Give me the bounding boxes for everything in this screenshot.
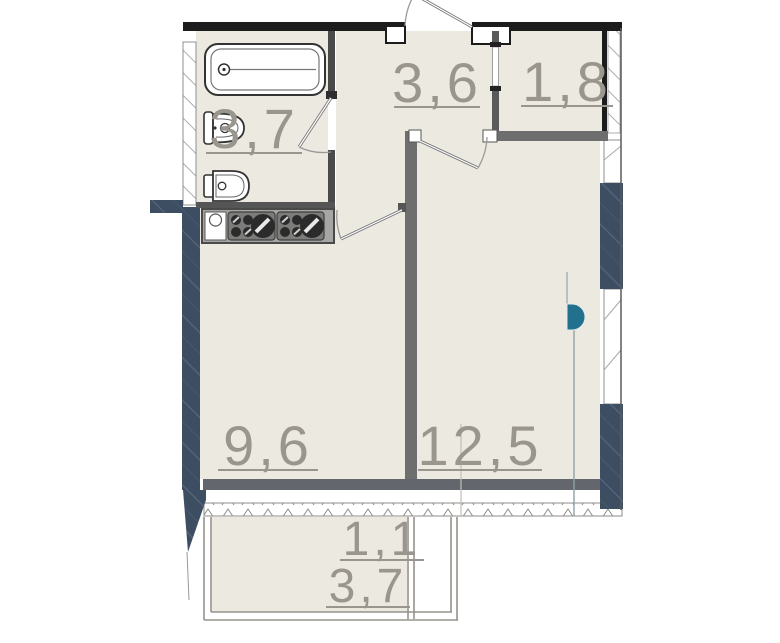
floor-plan-stage: 3,7 3,6 1,8 9,6 12,5 1,1 3,7: [0, 0, 780, 643]
room-area-label-balcony-small: 1,1: [340, 515, 424, 561]
room-area-label-kitchen: 9,6: [218, 414, 318, 471]
left-thin-wall: [183, 42, 196, 205]
room-area-label-storage: 1,8: [521, 52, 613, 107]
entry-door-swing: [405, 0, 472, 27]
room-area-label-hallway: 3,6: [394, 52, 480, 108]
toilet-icon: [204, 171, 249, 201]
kitchen-counter: [202, 209, 334, 243]
room-area-label-room: 12,5: [418, 414, 542, 471]
room-area-label-bathroom: 3,7: [206, 96, 302, 154]
kitchen-sink-icon: [205, 212, 226, 240]
bathtub-icon: [205, 44, 325, 95]
room-area-label-balcony: 3,7: [326, 561, 410, 608]
